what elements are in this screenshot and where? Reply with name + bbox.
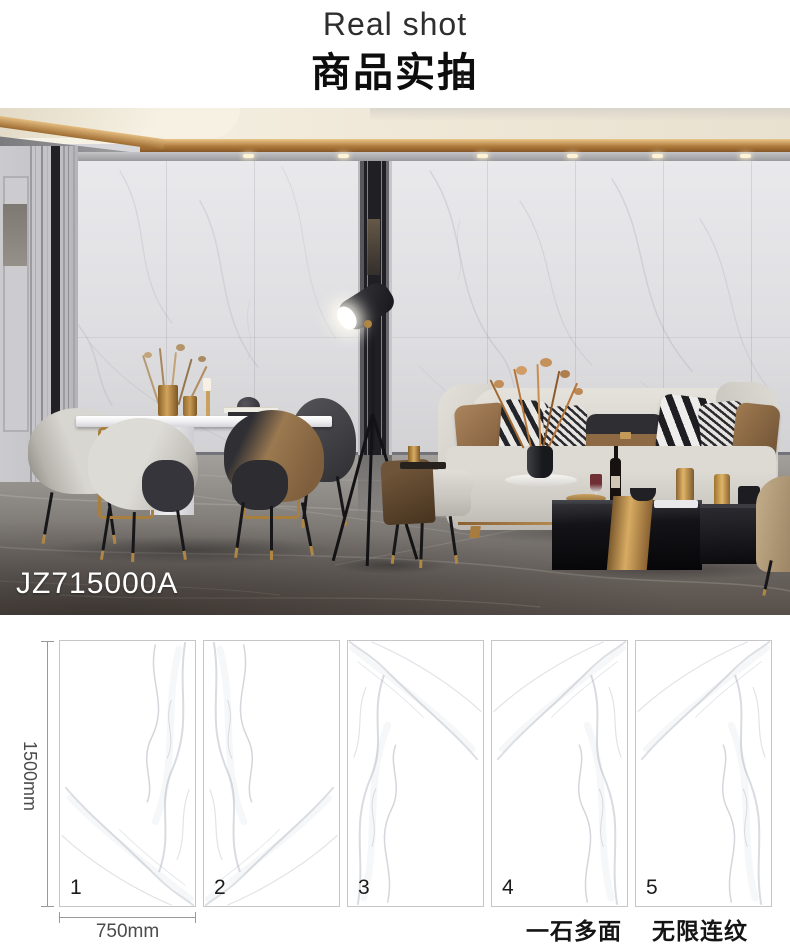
- height-dimension-label: 1500mm: [22, 741, 40, 805]
- downlight: [477, 154, 488, 158]
- marble-tray: [654, 500, 698, 508]
- tile-panel-4: 4: [491, 640, 628, 907]
- width-dimension-line: [59, 917, 196, 918]
- gold-cup: [408, 446, 420, 462]
- tile-panel-2: 2: [203, 640, 340, 907]
- wine-glass: [590, 474, 602, 492]
- tile-panel-3: 3: [347, 640, 484, 907]
- dimension-cap: [41, 641, 54, 642]
- led-strip: [140, 139, 790, 152]
- downlight: [338, 154, 349, 158]
- tile-number: 4: [502, 876, 514, 900]
- gold-decanter: [714, 474, 730, 506]
- lamp-hinge: [364, 320, 372, 328]
- armchair-partial: [756, 476, 790, 572]
- tray: [400, 462, 446, 469]
- plus-mark: +: [452, 58, 473, 100]
- tile-marble-veins: [60, 641, 195, 906]
- product-detail-page: Real shot 商品实拍 +: [0, 0, 790, 951]
- product-code-label: JZ715000A: [16, 567, 178, 601]
- width-dimension-label: 750mm: [59, 921, 196, 943]
- wall-grout-line-horizontal: [0, 337, 790, 338]
- flower-blob: [560, 370, 570, 378]
- tagline-left: 一石多面: [526, 918, 622, 944]
- downlight: [652, 154, 663, 158]
- gold-band: [607, 496, 653, 570]
- flower-blob: [540, 358, 552, 367]
- flower-blob: [144, 352, 152, 358]
- dimension-cap: [41, 906, 54, 907]
- flower-blob: [198, 356, 206, 362]
- brass-vase: [158, 385, 178, 416]
- tile-number: 1: [70, 876, 82, 900]
- divider-reflection: [367, 219, 380, 275]
- ceiling-shade: [370, 108, 790, 121]
- chair-leg: [270, 506, 273, 560]
- tile-number: 5: [646, 876, 658, 900]
- feature-tagline: 一石多面无限连纹: [526, 912, 748, 946]
- tile-panel-5: 5: [635, 640, 772, 907]
- chair-seat-front: [142, 460, 194, 512]
- sofa-foot: [469, 526, 481, 538]
- downlight: [567, 154, 578, 158]
- candle: [203, 378, 211, 391]
- tile-number: 2: [214, 876, 226, 900]
- wine-label: [611, 476, 620, 488]
- pillow-buckle: [620, 432, 631, 439]
- flower-blob: [494, 380, 504, 388]
- flower-blob: [516, 366, 527, 375]
- tile-marble-veins: [492, 641, 627, 906]
- gold-vessel: [676, 468, 694, 502]
- tile-panel-1: 1: [59, 640, 196, 907]
- flower-vase: [527, 446, 553, 478]
- height-dimension-line: [47, 641, 48, 907]
- candlestick: [206, 390, 210, 416]
- tile-marble-veins: [636, 641, 771, 906]
- downlight: [740, 154, 751, 158]
- wall-panel-recess: [3, 204, 27, 266]
- flower-blob: [574, 388, 583, 395]
- downlight: [243, 154, 254, 158]
- dining-shadow: [40, 536, 340, 564]
- header-subtitle-en: Real shot: [0, 6, 790, 43]
- flower-blob: [176, 344, 185, 351]
- chair-seat-front: [232, 460, 288, 510]
- tile-number: 3: [358, 876, 370, 900]
- tile-marble-veins: [348, 641, 483, 906]
- header-title-zh: 商品实拍: [0, 40, 790, 98]
- tagline-right: 无限连纹: [652, 918, 748, 944]
- tile-marble-veins: [204, 641, 339, 906]
- brass-vase: [183, 396, 197, 416]
- lamp-shadow: [330, 556, 450, 574]
- showroom-photo: JZ715000A: [0, 108, 790, 615]
